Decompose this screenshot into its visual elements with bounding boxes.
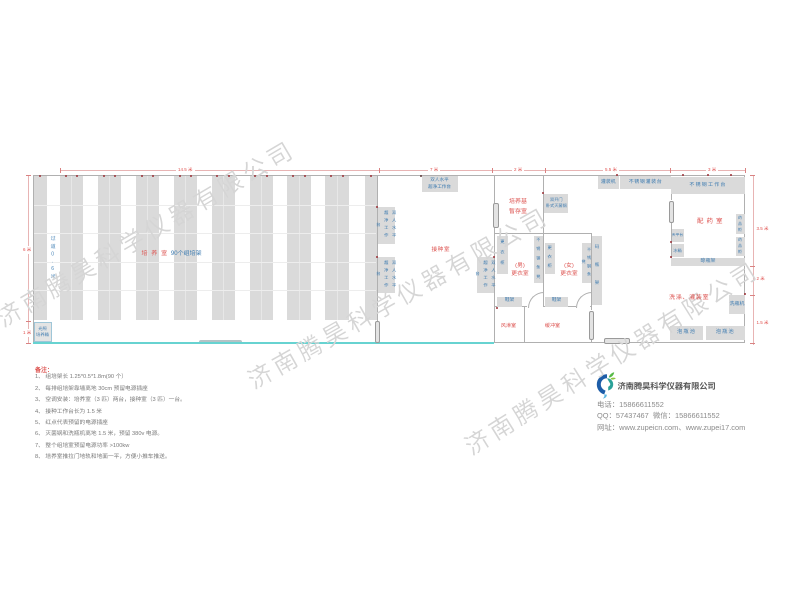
svg-text:TH: TH	[601, 383, 608, 389]
